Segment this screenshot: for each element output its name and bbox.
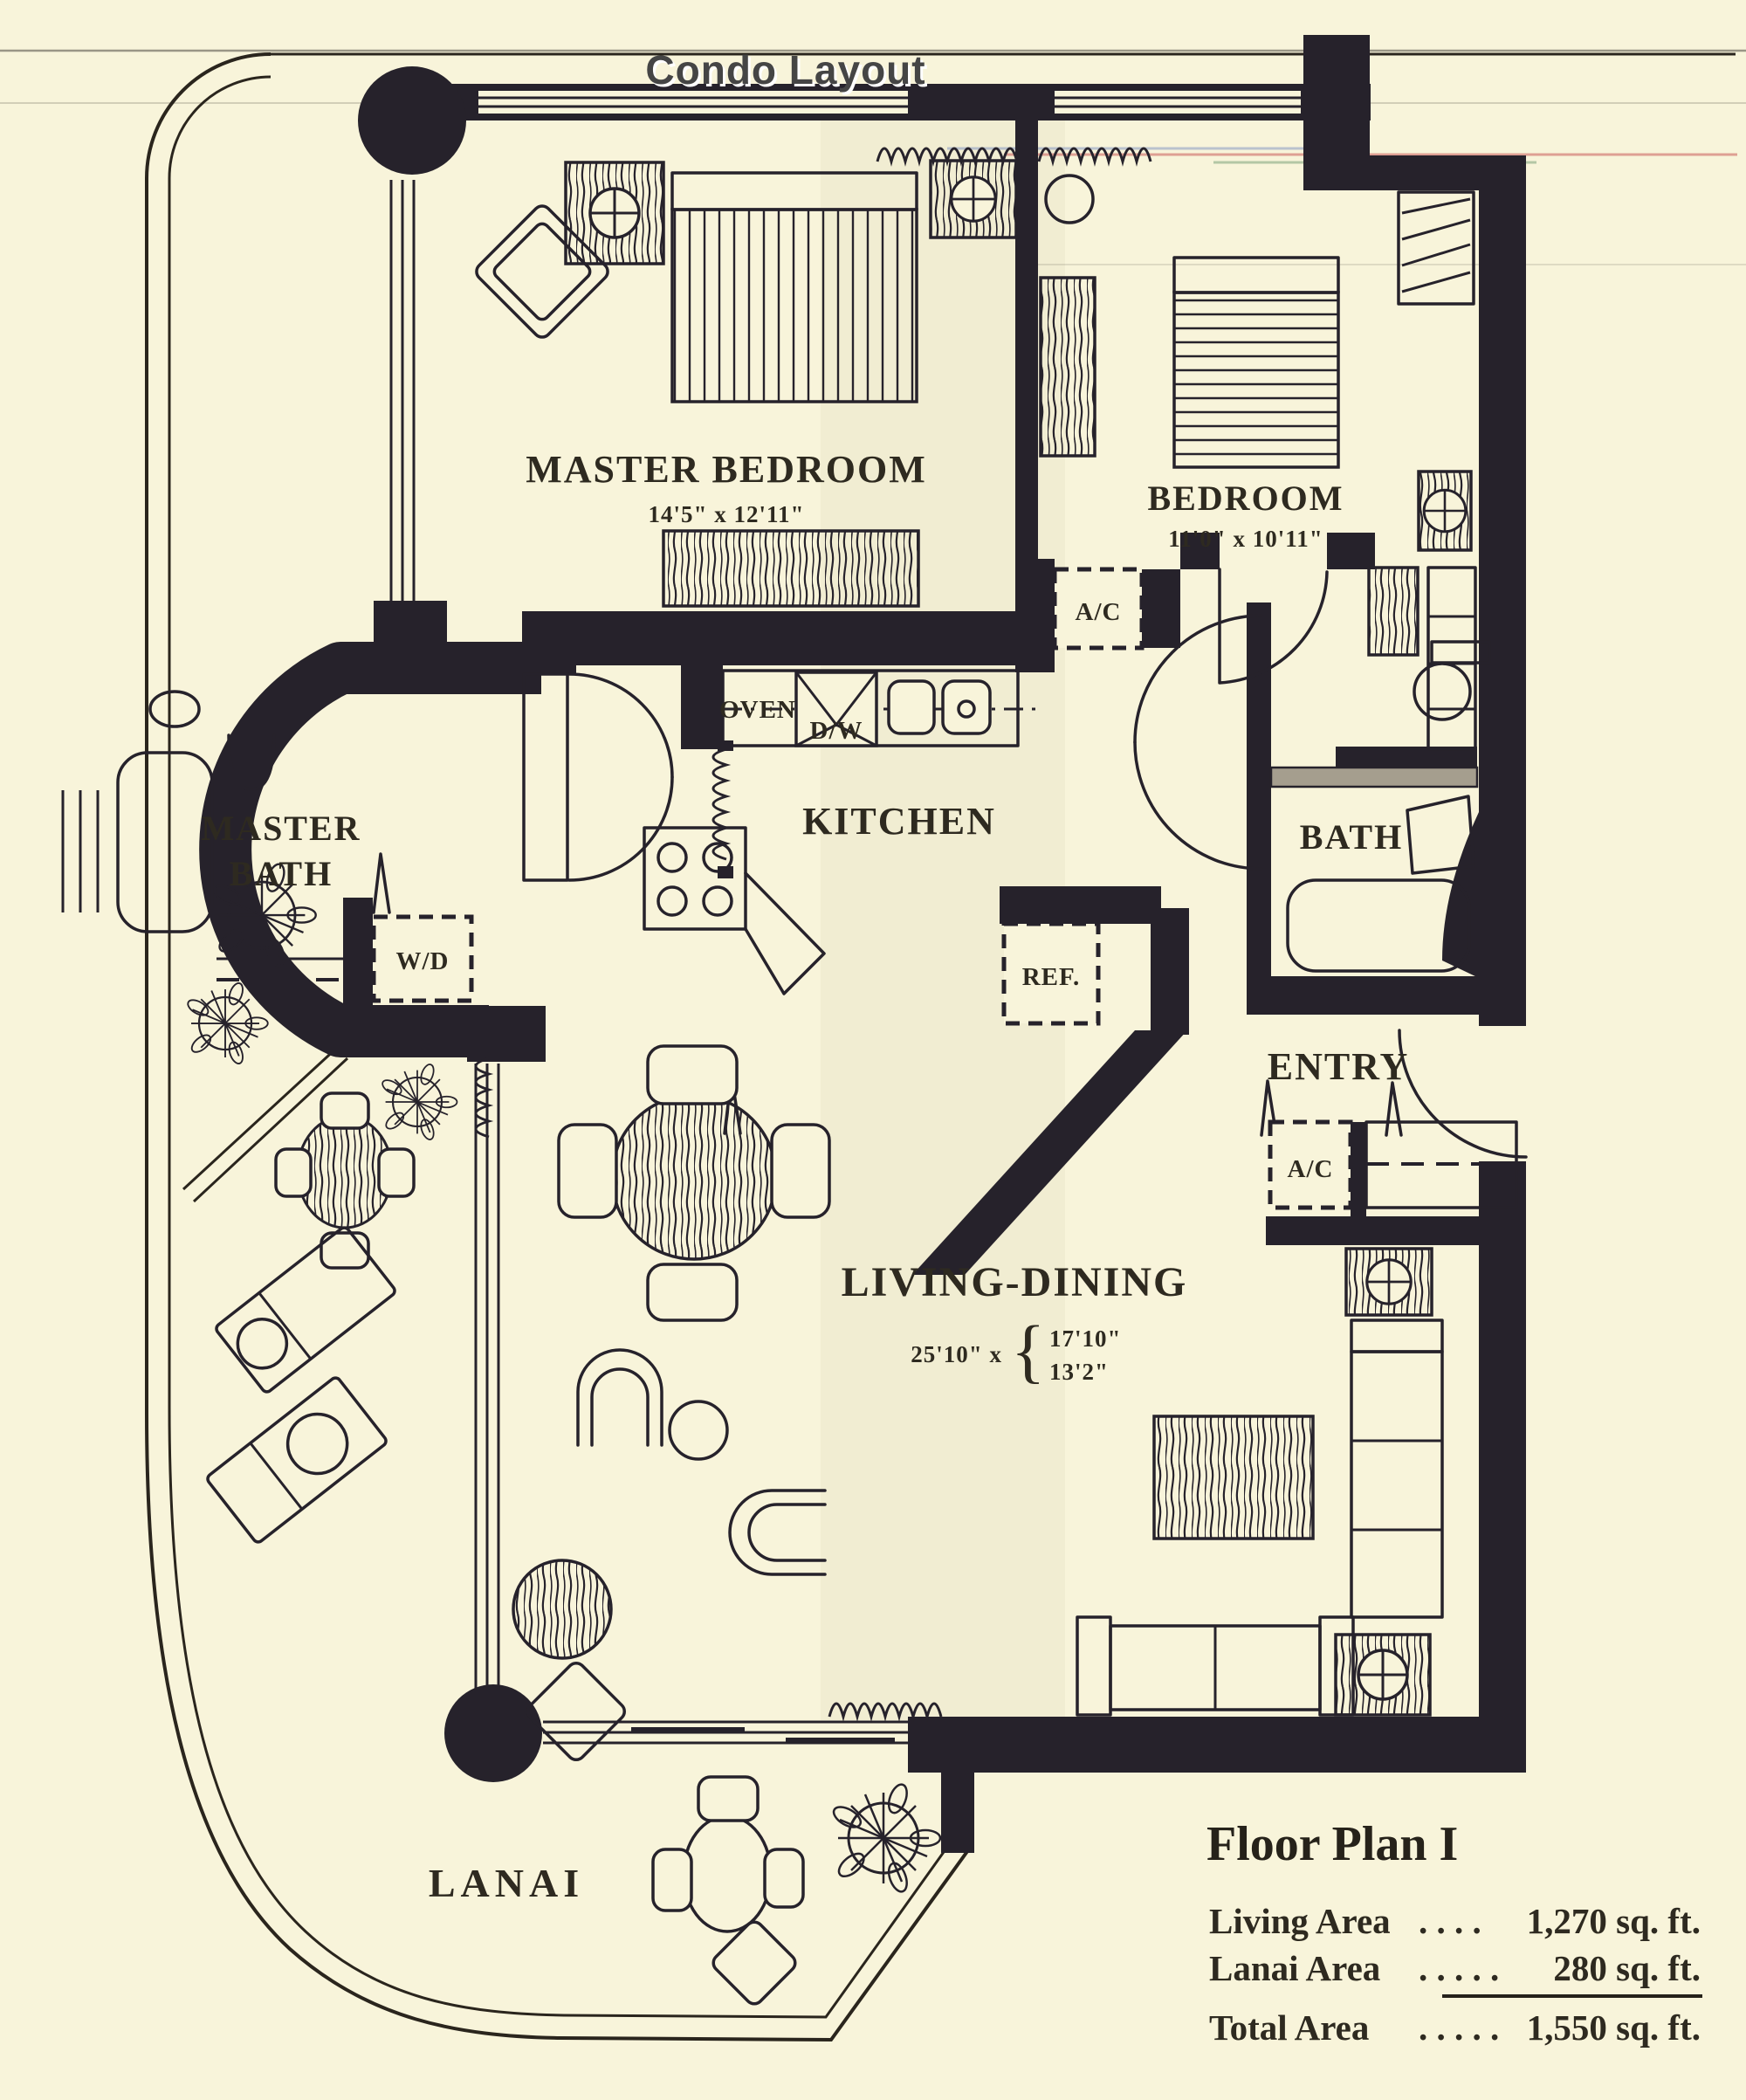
label-lanai: LANAI: [429, 1861, 584, 1905]
bedroom-nightstand: [1419, 472, 1471, 550]
bedroom-bed: [1174, 293, 1338, 467]
rug: [1154, 1416, 1313, 1539]
legend-row-value: 1,550 sq. ft.: [1527, 2007, 1701, 2048]
legend-row-label: Living Area: [1209, 1901, 1391, 1941]
dims-living-dining-a: 17'10": [1049, 1325, 1122, 1352]
label-living-dining: LIVING-DINING: [842, 1259, 1188, 1305]
corner-column-top: [358, 66, 466, 175]
dims-master-bedroom: 14'5" x 12'11": [649, 501, 805, 527]
page-title: Condo Layout: [645, 47, 925, 93]
label-ac-entry: A/C: [1288, 1155, 1334, 1183]
label-ac-hall: A/C: [1076, 598, 1122, 626]
label-bedroom: BEDROOM: [1147, 479, 1344, 518]
dims-brace: {: [1011, 1311, 1045, 1390]
label-master-bath-1: MASTER: [201, 809, 361, 848]
dims-bedroom: 11'0" x 10'11": [1168, 526, 1323, 552]
label-entry: ENTRY: [1268, 1045, 1409, 1088]
legend-row-dots: . . . . .: [1419, 1948, 1499, 1988]
legend-title: Floor Plan I: [1206, 1817, 1458, 1871]
label-washer-dryer: W/D: [396, 947, 450, 975]
legend-row-label: Total Area: [1209, 2007, 1369, 2048]
master-bed: [672, 210, 917, 402]
bath-vanity: [1271, 768, 1477, 787]
corner-column-bottom: [444, 1684, 542, 1782]
legend-row-label: Lanai Area: [1209, 1948, 1380, 1988]
floor-plan-svg: MASTER BEDROOM 14'5" x 12'11" BEDROOM 11…: [0, 0, 1746, 2100]
label-dishwasher: D/W: [810, 717, 863, 745]
label-master-bedroom: MASTER BEDROOM: [526, 448, 926, 491]
nightstand-right: [931, 161, 1016, 238]
legend-row-value: 280 sq. ft.: [1553, 1948, 1701, 1988]
label-master-bath-2: BATH: [230, 854, 333, 893]
floor-plan-page: MASTER BEDROOM 14'5" x 12'11" BEDROOM 11…: [0, 0, 1746, 2100]
label-refrigerator: REF.: [1022, 963, 1081, 991]
label-oven: OVEN: [719, 696, 796, 724]
dims-living-dining-b: 13'2": [1049, 1359, 1109, 1385]
label-bath: BATH: [1300, 817, 1403, 857]
wardrobe: [1041, 278, 1095, 456]
legend-row-dots: . . . . .: [1419, 2007, 1499, 2048]
round-table: [513, 1560, 611, 1658]
lamp-table-corner: [1336, 1635, 1430, 1715]
legend-row-dots: . . . .: [1419, 1901, 1481, 1941]
dresser: [663, 531, 918, 606]
lamp-table-top: [1346, 1249, 1432, 1315]
dims-living-dining-main: 25'10" x: [911, 1341, 1002, 1367]
legend-row-value: 1,270 sq. ft.: [1527, 1901, 1701, 1941]
nightstand-left: [566, 162, 663, 264]
label-kitchen: KITCHEN: [802, 800, 996, 843]
